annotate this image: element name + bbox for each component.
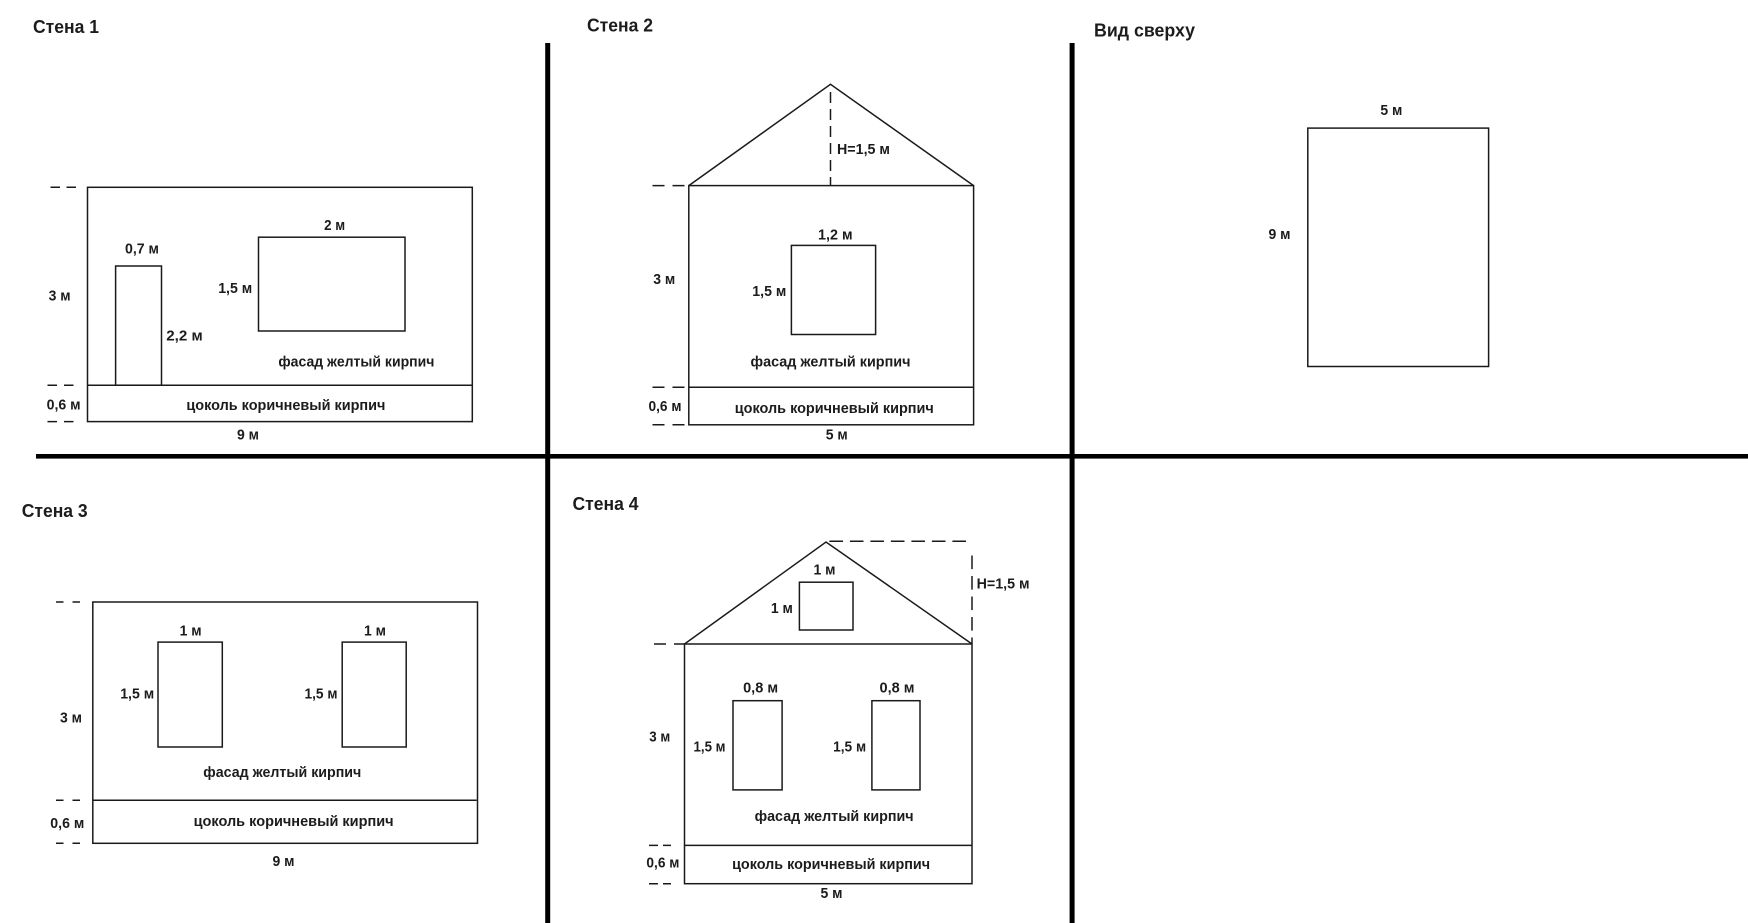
svg-text:Н=1,5 м: Н=1,5 м [837, 141, 890, 158]
svg-text:1,5 м: 1,5 м [305, 685, 338, 702]
svg-text:0,7 м: 0,7 м [125, 241, 159, 258]
svg-text:Стена 4: Стена 4 [573, 494, 639, 514]
svg-text:фасад желтый кирпич: фасад желтый кирпич [278, 354, 434, 371]
svg-text:1 м: 1 м [771, 600, 793, 617]
svg-text:3 м: 3 м [649, 729, 670, 746]
svg-text:2,2 м: 2,2 м [166, 328, 203, 345]
svg-text:Стена 2: Стена 2 [587, 16, 653, 36]
svg-text:9 м: 9 м [1269, 226, 1291, 243]
svg-text:фасад желтый кирпич: фасад желтый кирпич [755, 808, 914, 825]
svg-text:0,6 м: 0,6 м [50, 815, 84, 832]
svg-text:0,6 м: 0,6 м [649, 398, 682, 415]
svg-text:Стена 3: Стена 3 [22, 501, 88, 521]
svg-text:1 м: 1 м [364, 623, 386, 640]
svg-text:1,5 м: 1,5 м [120, 685, 154, 702]
svg-text:фасад желтый кирпич: фасад желтый кирпич [203, 764, 361, 781]
svg-text:0,6 м: 0,6 м [646, 854, 679, 871]
svg-text:Стена 1: Стена 1 [33, 17, 99, 37]
svg-text:цоколь коричневый кирпич: цоколь коричневый кирпич [735, 400, 934, 417]
svg-text:1,5 м: 1,5 м [833, 739, 866, 756]
svg-text:3 м: 3 м [60, 710, 82, 727]
svg-text:Вид сверху: Вид сверху [1094, 21, 1195, 41]
svg-text:3 м: 3 м [653, 271, 675, 288]
svg-text:цоколь коричневый кирпич: цоколь коричневый кирпич [186, 397, 385, 414]
svg-text:1,5 м: 1,5 м [752, 283, 786, 300]
svg-text:1 м: 1 м [814, 562, 836, 579]
svg-text:цоколь коричневый кирпич: цоколь коричневый кирпич [194, 813, 394, 830]
svg-text:1,2 м: 1,2 м [818, 227, 853, 244]
svg-text:1,5 м: 1,5 м [218, 280, 252, 297]
svg-text:цоколь коричневый кирпич: цоколь коричневый кирпич [732, 856, 930, 873]
svg-text:5 м: 5 м [826, 426, 848, 443]
svg-text:1,5 м: 1,5 м [694, 739, 726, 756]
svg-text:Н=1,5 м: Н=1,5 м [977, 576, 1030, 593]
svg-text:9 м: 9 м [237, 426, 259, 443]
svg-text:2 м: 2 м [324, 217, 345, 234]
svg-text:5 м: 5 м [821, 885, 843, 902]
svg-text:0,6 м: 0,6 м [47, 397, 81, 414]
svg-text:фасад желтый кирпич: фасад желтый кирпич [751, 354, 911, 371]
svg-text:1 м: 1 м [180, 623, 202, 640]
svg-text:0,8 м: 0,8 м [743, 679, 778, 696]
svg-text:0,8 м: 0,8 м [880, 679, 915, 696]
svg-text:3 м: 3 м [49, 288, 71, 305]
svg-text:5 м: 5 м [1380, 102, 1402, 119]
svg-text:9 м: 9 м [273, 853, 295, 870]
